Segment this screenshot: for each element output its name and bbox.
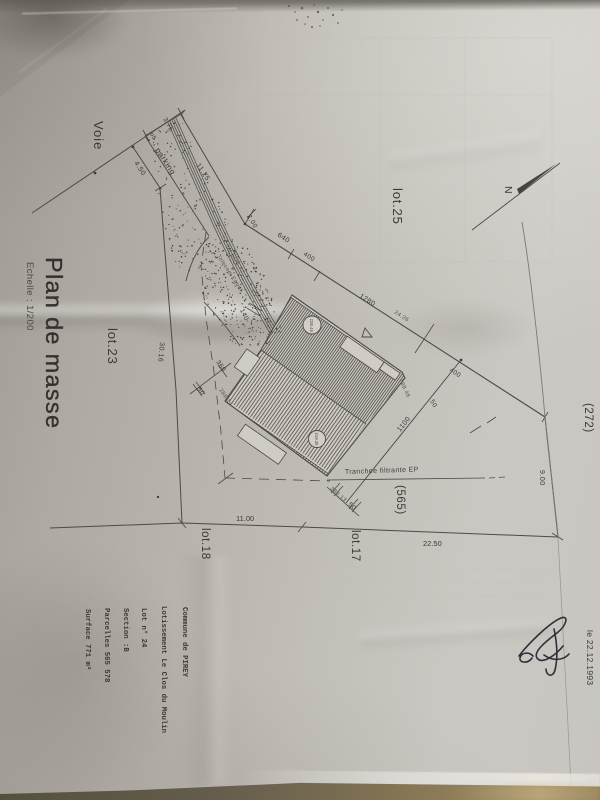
svg-text:360: 360 bbox=[214, 359, 227, 373]
svg-text:50: 50 bbox=[428, 399, 438, 410]
svg-text:Lotissement Le Clos du Moulin: Lotissement Le Clos du Moulin bbox=[159, 606, 167, 733]
svg-text:288.13: 288.13 bbox=[329, 486, 348, 504]
svg-text:Voie: Voie bbox=[91, 121, 106, 150]
svg-text:140: 140 bbox=[238, 308, 250, 322]
svg-text:Lot n° 24: Lot n° 24 bbox=[139, 608, 148, 648]
svg-text:Commune de PIREY: Commune de PIREY bbox=[180, 607, 188, 678]
svg-text:1280: 1280 bbox=[358, 293, 377, 308]
svg-text:parking: parking bbox=[153, 146, 177, 176]
svg-text:9.00: 9.00 bbox=[538, 470, 545, 486]
svg-text:228.46: 228.46 bbox=[309, 319, 314, 333]
svg-text:lot.23: lot.23 bbox=[105, 328, 120, 365]
svg-text:lot.25: lot.25 bbox=[390, 188, 405, 225]
svg-text:2.00: 2.00 bbox=[245, 214, 258, 230]
svg-text:le 22.12.1993: le 22.12.1993 bbox=[585, 630, 595, 685]
svg-text:4.50: 4.50 bbox=[132, 160, 146, 177]
svg-text:N: N bbox=[502, 186, 514, 194]
svg-text:300505: 300505 bbox=[29, 622, 40, 661]
svg-text:22.50: 22.50 bbox=[423, 539, 442, 548]
svg-text:lot.18: lot.18 bbox=[199, 528, 211, 560]
svg-text:(565): (565) bbox=[394, 485, 406, 515]
svg-text:lot.17: lot.17 bbox=[349, 530, 361, 562]
svg-text:640: 640 bbox=[276, 232, 291, 245]
svg-text:(272): (272) bbox=[582, 403, 594, 433]
svg-text:50: 50 bbox=[195, 386, 205, 397]
svg-text:11.00: 11.00 bbox=[236, 514, 254, 523]
svg-text:400: 400 bbox=[448, 367, 462, 380]
svg-text:24.26: 24.26 bbox=[393, 310, 410, 324]
svg-text:50: 50 bbox=[347, 501, 358, 512]
svg-text:Plan de masse: Plan de masse bbox=[41, 257, 67, 429]
svg-text:30.16: 30.16 bbox=[156, 342, 165, 363]
svg-text:Surface 771 m²: Surface 771 m² bbox=[83, 609, 92, 670]
svg-text:11.25: 11.25 bbox=[194, 162, 210, 182]
svg-text:Echelle : 1/200: Echelle : 1/200 bbox=[24, 262, 35, 331]
svg-text:Parcelles 565 578: Parcelles 565 578 bbox=[102, 608, 110, 682]
svg-text:219.30: 219.30 bbox=[314, 433, 319, 447]
svg-text:788.46: 788.46 bbox=[397, 378, 411, 399]
svg-text:Tranchee filtrante EP: Tranchee filtrante EP bbox=[345, 466, 419, 476]
svg-text:Section :B: Section :B bbox=[121, 608, 129, 652]
